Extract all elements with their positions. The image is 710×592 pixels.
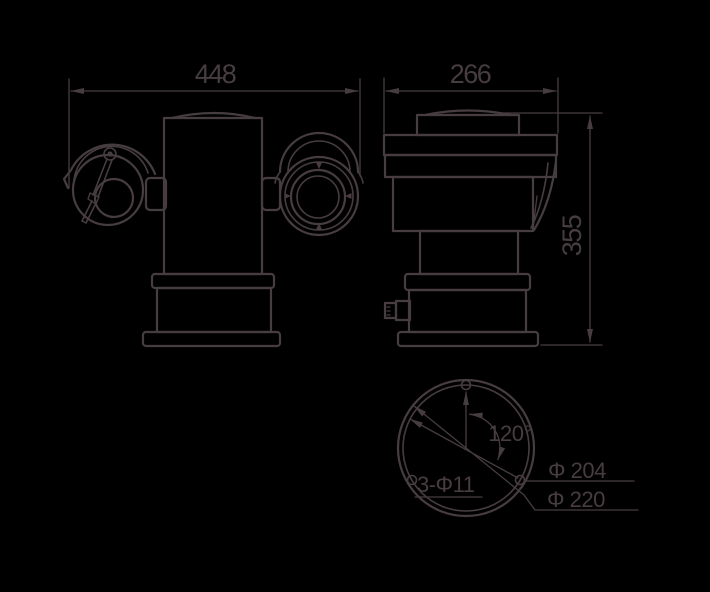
side-view: 266 355	[384, 59, 602, 346]
wiper-pivot-dot	[107, 151, 112, 156]
side-pedestal-body	[409, 290, 526, 332]
side-shield-band-lower	[385, 155, 556, 177]
left-camera-housing	[64, 145, 166, 225]
side-housing-body	[393, 177, 533, 231]
side-body	[384, 111, 557, 347]
column-body	[164, 118, 262, 274]
pan-tilt-column	[143, 113, 280, 346]
hole-angle-label: 120°	[488, 421, 532, 446]
column-flange	[152, 274, 274, 288]
side-height-label: 355	[557, 215, 587, 256]
side-width-dimension: 266	[384, 59, 558, 133]
lens-ring-tick-top	[316, 163, 322, 170]
pedestal-body	[157, 288, 271, 332]
side-width-label: 266	[450, 59, 491, 89]
base-plate-side	[398, 332, 538, 346]
lens-ring-mid	[285, 162, 353, 230]
side-top-cap	[417, 115, 519, 135]
flange-diameter-label: Φ 220	[547, 487, 605, 512]
side-height-dimension: 355	[495, 113, 602, 345]
base-plate-front	[143, 332, 280, 346]
left-housing-lens	[95, 179, 133, 217]
left-housing-face	[73, 155, 143, 225]
right-housing-bracket	[262, 178, 280, 210]
lens-glass-inner	[297, 176, 339, 218]
wiper-hinge	[88, 193, 99, 204]
engineering-drawing-canvas: 448	[0, 0, 710, 592]
right-lens-housing	[262, 133, 363, 235]
lens-glass-outer	[291, 170, 345, 224]
side-neck	[420, 231, 518, 274]
front-width-dimension: 448	[69, 59, 360, 188]
wiper-blade-tip	[82, 221, 86, 223]
front-width-label: 448	[195, 59, 236, 89]
cable-connector	[385, 301, 410, 320]
bottom-view: 120° 3-Φ11 Φ 204 Φ 220	[398, 380, 638, 516]
side-shield-band-upper	[384, 135, 557, 155]
bolt-circle-diameter-label: Φ 204	[548, 458, 606, 483]
hole-spec-label: 3-Φ11	[417, 472, 475, 497]
front-view: 448	[64, 59, 363, 346]
side-flange	[405, 274, 530, 290]
